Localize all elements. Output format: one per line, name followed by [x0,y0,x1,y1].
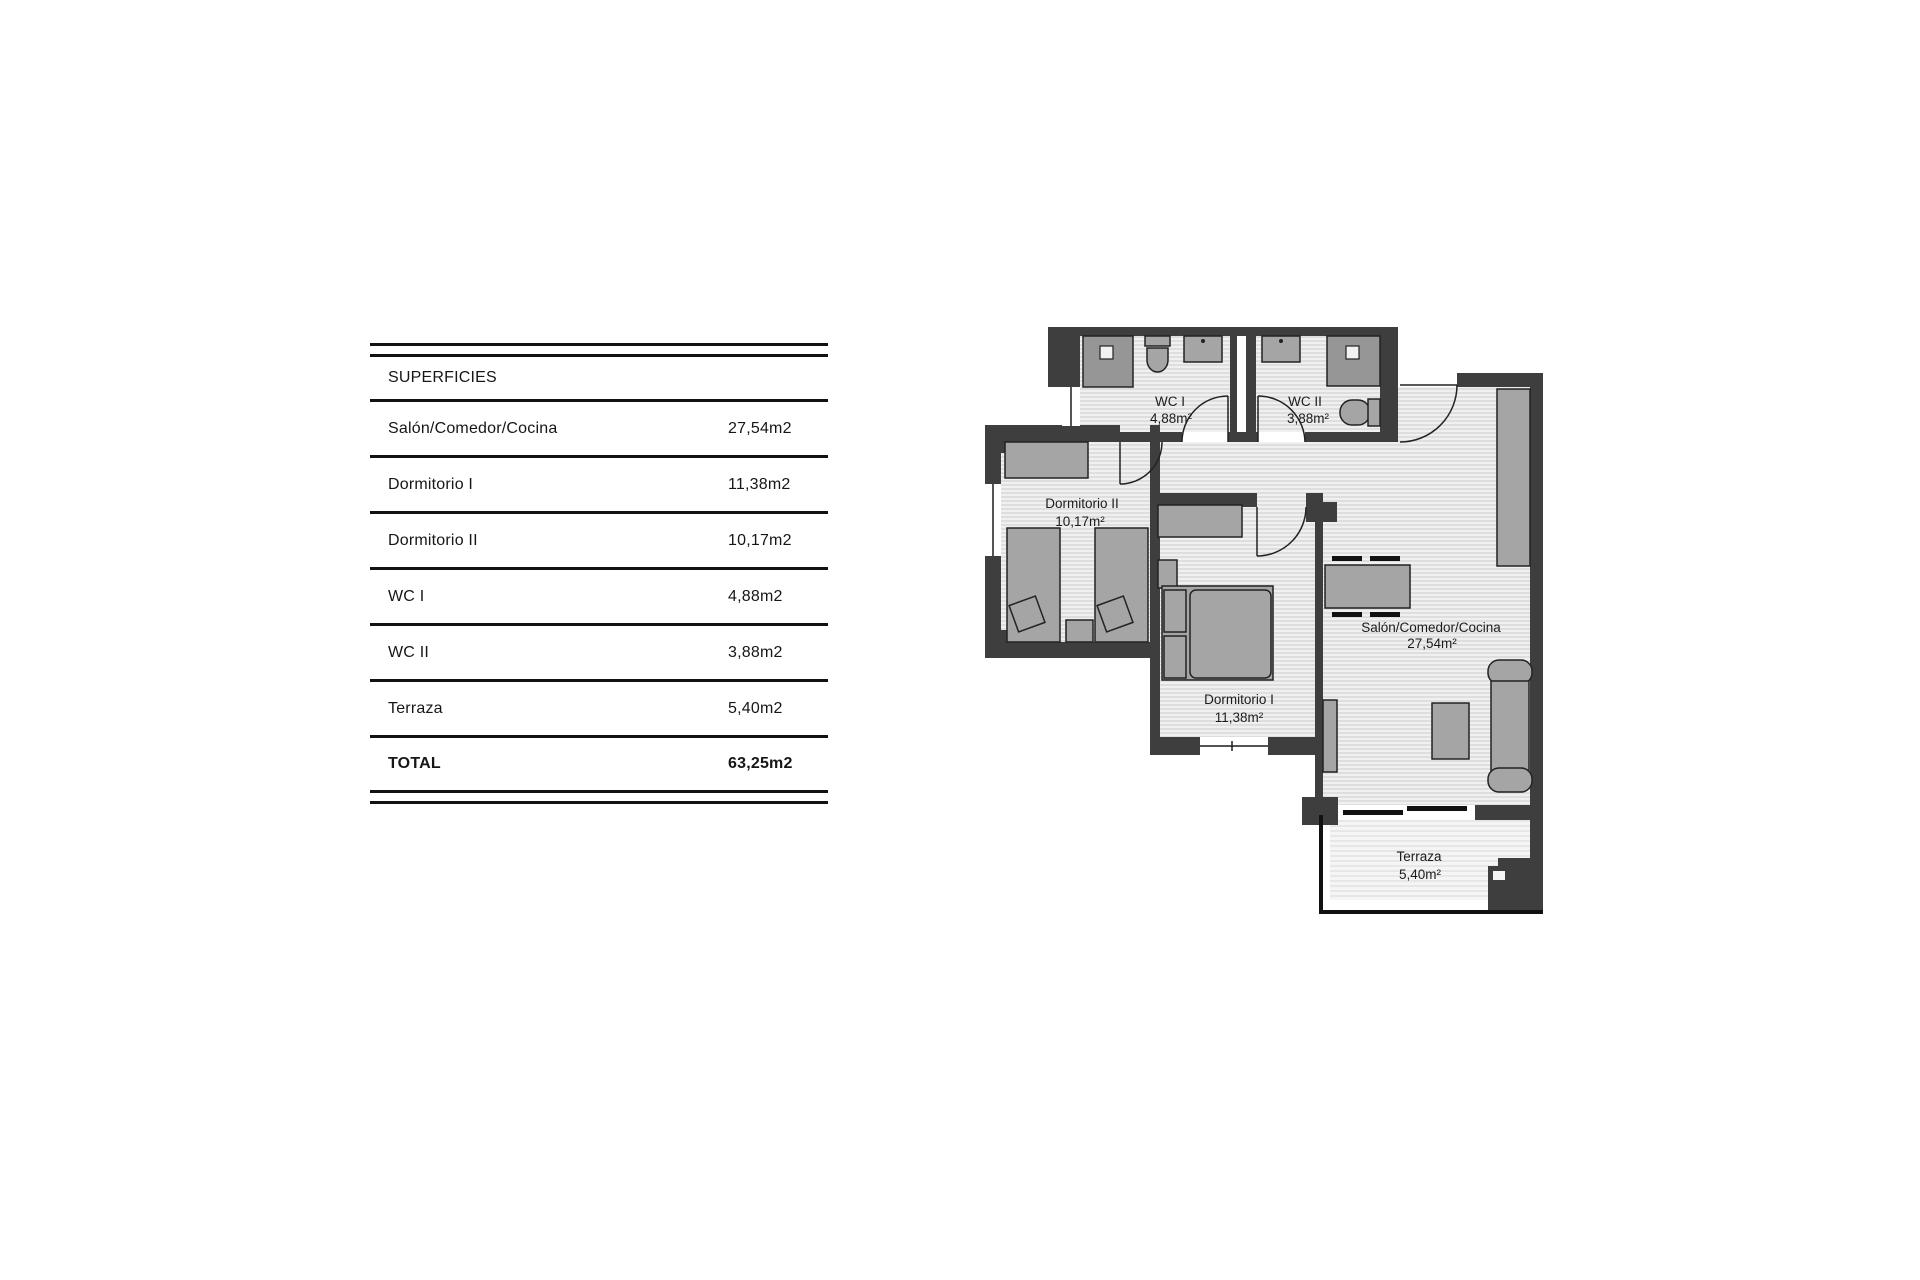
label-wc1-name: WC I [1155,394,1185,409]
wc2-sink [1262,336,1300,362]
row-value: 4,88m2 [728,588,783,606]
wc1-toilet [1145,336,1170,372]
dormitorio2-wardrobe [1005,442,1088,478]
floorplan-sheet: SUPERFICIES Salón/Comedor/Cocina 27,54m2… [0,0,1920,1280]
label-terraza-area: 5,40m² [1399,867,1442,882]
label-salon-area: 27,54m² [1407,636,1457,651]
row-label: Dormitorio II [388,532,478,550]
table-row-salon: Salón/Comedor/Cocina 27,54m2 [370,402,828,455]
label-dormitorio1-name: Dormitorio I [1204,692,1274,707]
kitchen-counter [1497,389,1530,566]
window-wc1 [1062,387,1080,426]
coffee-table [1432,703,1469,759]
table-row-total: TOTAL 63,25m2 [370,738,828,790]
table-row-dormitorio-2: Dormitorio II 10,17m2 [370,514,828,567]
row-label: WC I [388,588,424,606]
total-label: TOTAL [388,755,441,773]
table-row-terraza: Terraza 5,40m2 [370,682,828,735]
table-row-wc-2: WC II 3,88m2 [370,626,828,679]
window-dormitorio1 [1200,737,1268,755]
sofa [1488,660,1532,792]
dormitorio1-double-bed [1162,586,1273,680]
row-label: Salón/Comedor/Cocina [388,420,557,438]
row-value: 10,17m2 [728,532,792,550]
surfaces-table: SUPERFICIES Salón/Comedor/Cocina 27,54m2… [370,343,828,804]
table-row-wc-1: WC I 4,88m2 [370,570,828,623]
dormitorio2-nightstand [1066,620,1093,642]
table-title: SUPERFICIES [388,369,497,387]
label-dormitorio2-name: Dormitorio II [1045,496,1119,511]
label-dormitorio2-area: 10,17m² [1055,514,1105,529]
wc2-toilet [1340,399,1380,426]
table-header-row: SUPERFICIES [370,357,828,399]
row-value: 11,38m2 [728,476,790,494]
label-dormitorio1-area: 11,38m² [1215,710,1264,725]
dormitorio2-bed-right [1095,528,1148,642]
wc2-shower [1327,336,1380,386]
label-wc1-area: 4,88m² [1150,411,1193,426]
total-value: 63,25m2 [728,755,793,773]
sideboard [1323,700,1337,772]
row-label: Terraza [388,700,443,718]
terrace-sliding-door [1338,805,1475,820]
label-wc2-name: WC II [1288,394,1322,409]
dormitorio1-wardrobe [1158,505,1242,537]
dining-table [1325,556,1410,617]
row-value: 5,40m2 [728,700,783,718]
label-wc2-area: 3,88m² [1287,411,1330,426]
table-bottom-rule-2 [370,801,828,804]
row-value: 27,54m2 [728,420,792,438]
dormitorio2-bed-left [1007,528,1060,642]
label-terraza-name: Terraza [1396,849,1442,864]
table-row-dormitorio-1: Dormitorio I 11,38m2 [370,458,828,511]
row-label: Dormitorio I [388,476,473,494]
window-dormitorio2 [985,484,1001,556]
terrace-parapet-bottom [1319,910,1543,914]
dormitorio1-shelf [1158,560,1177,588]
row-value: 3,88m2 [728,644,783,662]
wc1-shower [1083,336,1133,387]
wc1-sink [1184,336,1222,362]
floor-plan: WC I 4,88m² WC II 3,88m² Dormitorio II 1… [980,318,1560,924]
label-salon-name: Salón/Comedor/Cocina [1361,620,1501,635]
row-label: WC II [388,644,429,662]
terrace-parapet-left [1319,815,1323,914]
